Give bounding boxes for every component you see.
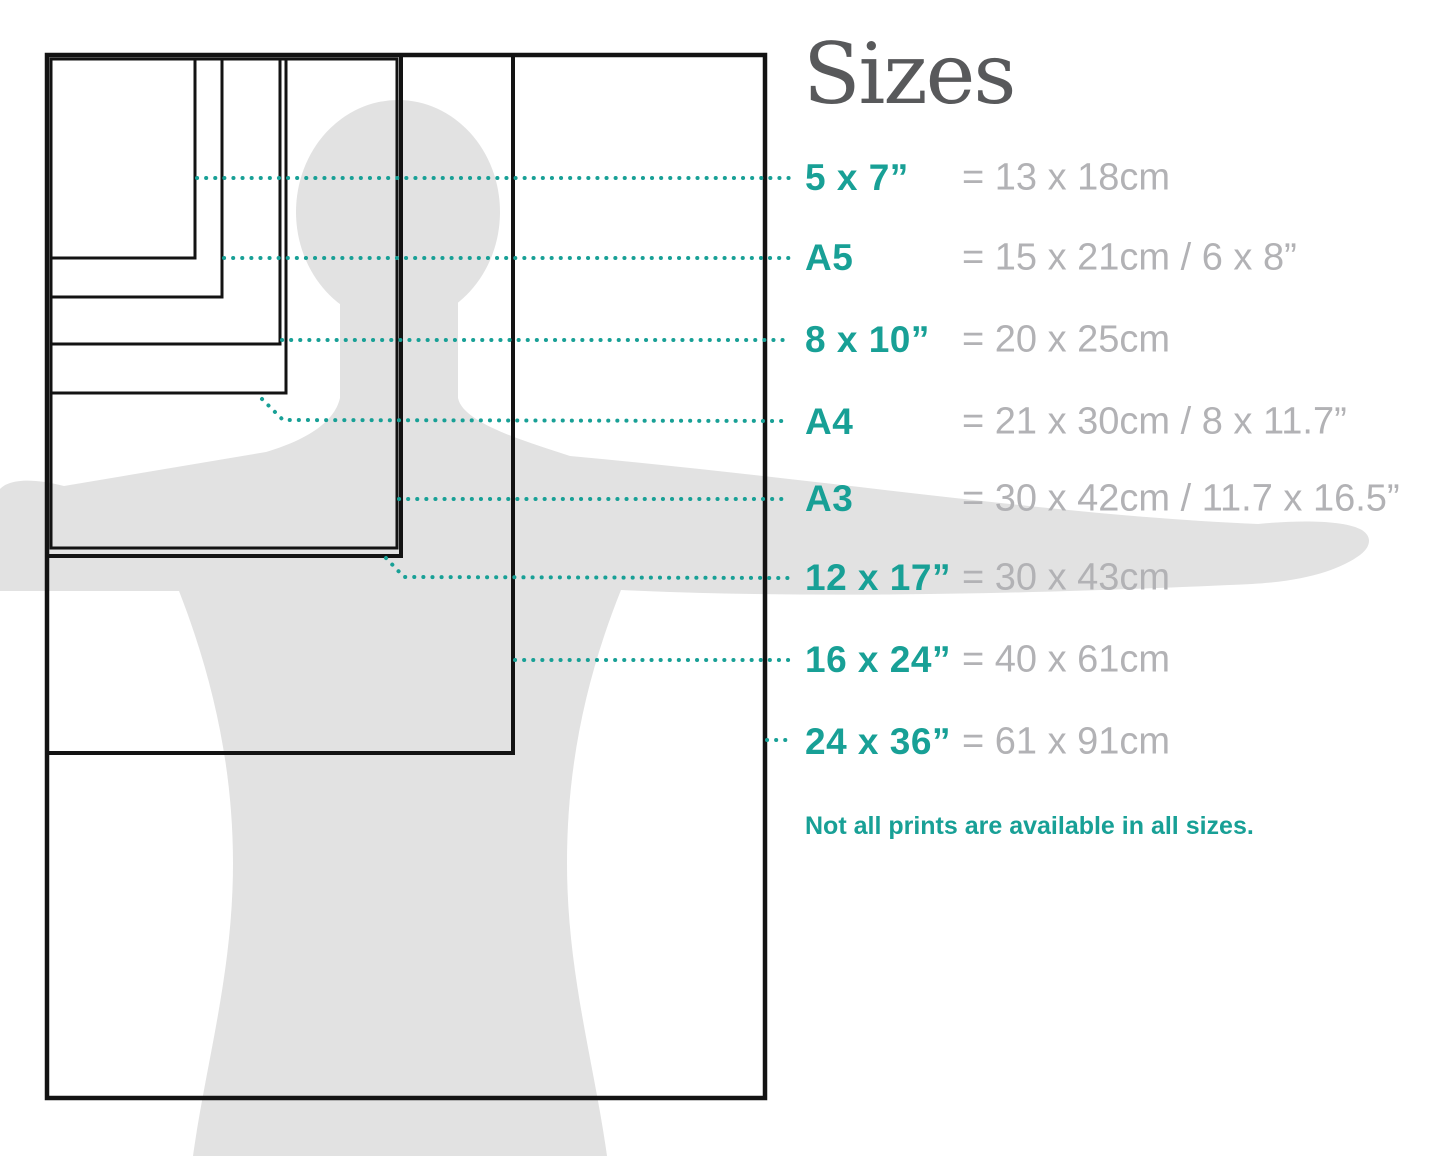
size-label: 12 x 17” [805,557,951,599]
size-row: A4= 21 x 30cm / 8 x 11.7” [805,396,1435,448]
size-label: A5 [805,237,853,279]
size-value: = 40 x 61cm [962,639,1170,682]
size-label: 24 x 36” [805,721,951,763]
size-value: = 20 x 25cm [962,319,1170,362]
size-row: 16 x 24”= 40 x 61cm [805,634,1435,686]
size-value: = 13 x 18cm [962,157,1170,200]
size-row: A5= 15 x 21cm / 6 x 8” [805,232,1435,284]
size-value: = 21 x 30cm / 8 x 11.7” [962,401,1347,444]
page-title: Sizes [803,30,1014,118]
size-rect-5x7 [51,59,195,258]
size-row: 5 x 7”= 13 x 18cm [805,152,1435,204]
size-value: = 61 x 91cm [962,721,1170,764]
silhouette-body [0,255,1369,1156]
size-label: A3 [805,478,853,520]
size-label: 16 x 24” [805,639,951,681]
availability-note: Not all prints are available in all size… [805,812,1425,841]
size-rect-8x10 [51,59,280,344]
size-value: = 30 x 43cm [962,557,1170,600]
size-row: A3= 30 x 42cm / 11.7 x 16.5” [805,473,1435,525]
size-row: 24 x 36”= 61 x 91cm [805,716,1435,768]
size-row: 8 x 10”= 20 x 25cm [805,314,1435,366]
size-row: 12 x 17”= 30 x 43cm [805,552,1435,604]
size-value: = 30 x 42cm / 11.7 x 16.5” [962,478,1400,521]
size-label: A4 [805,401,853,443]
size-value: = 15 x 21cm / 6 x 8” [962,237,1297,280]
size-guide: Sizes 5 x 7”= 13 x 18cmA5= 15 x 21cm / 6… [0,0,1445,1156]
size-label: 5 x 7” [805,157,909,199]
size-label: 8 x 10” [805,319,930,361]
